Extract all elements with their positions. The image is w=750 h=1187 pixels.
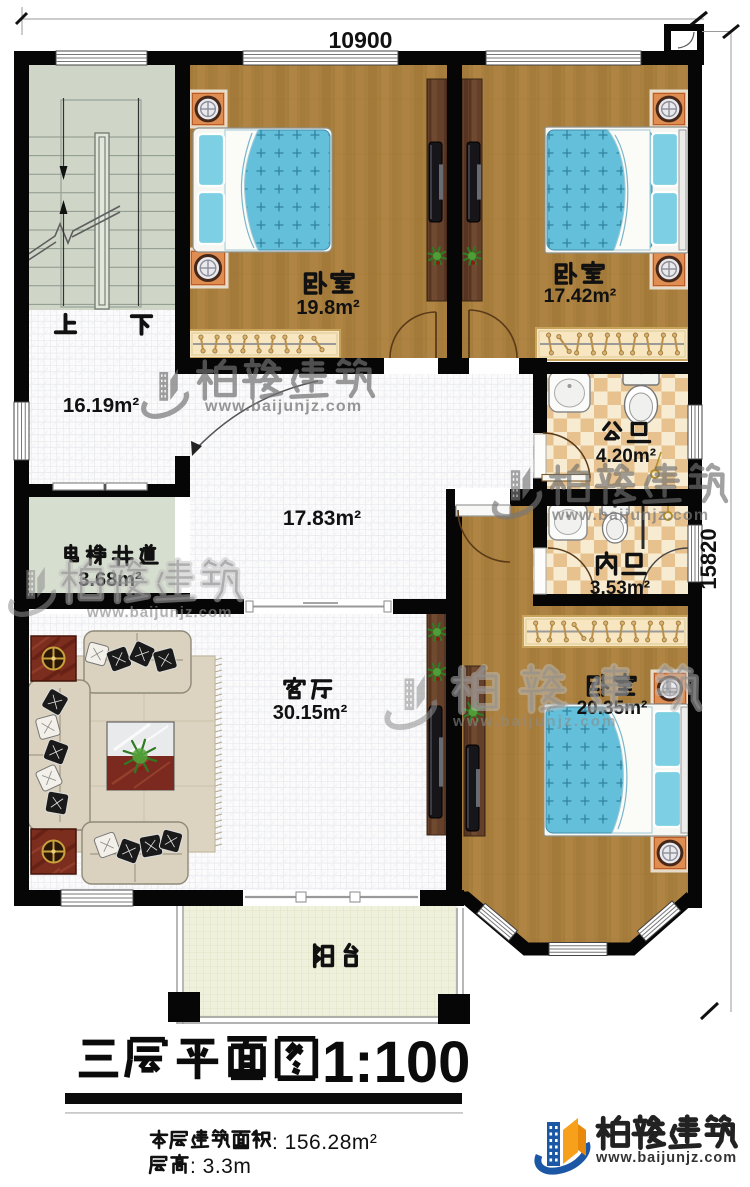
svg-text:17.42m²: 17.42m² [544, 285, 617, 307]
svg-text:30.15m²: 30.15m² [273, 702, 348, 724]
svg-text:www.baijunjz.com: www.baijunjz.com [452, 713, 618, 730]
svg-text:10900: 10900 [329, 27, 393, 53]
svg-text:www.baijunjz.com: www.baijunjz.com [595, 1150, 737, 1166]
svg-text:1:100: 1:100 [322, 1030, 470, 1095]
svg-text:16.19m²: 16.19m² [63, 394, 140, 417]
svg-text:3.53m²: 3.53m² [590, 578, 650, 599]
svg-text:www.baijunjz.com: www.baijunjz.com [86, 604, 232, 621]
svg-text:www.baijunjz.com: www.baijunjz.com [551, 507, 709, 524]
svg-text:19.8m²: 19.8m² [296, 297, 360, 319]
svg-text:: 3.3m: : 3.3m [190, 1155, 251, 1178]
svg-text:17.83m²: 17.83m² [283, 507, 361, 530]
svg-text:www.baijunjz.com: www.baijunjz.com [204, 398, 362, 415]
svg-text:15820: 15820 [696, 528, 721, 589]
svg-text:: 156.28m²: : 156.28m² [272, 1131, 377, 1154]
